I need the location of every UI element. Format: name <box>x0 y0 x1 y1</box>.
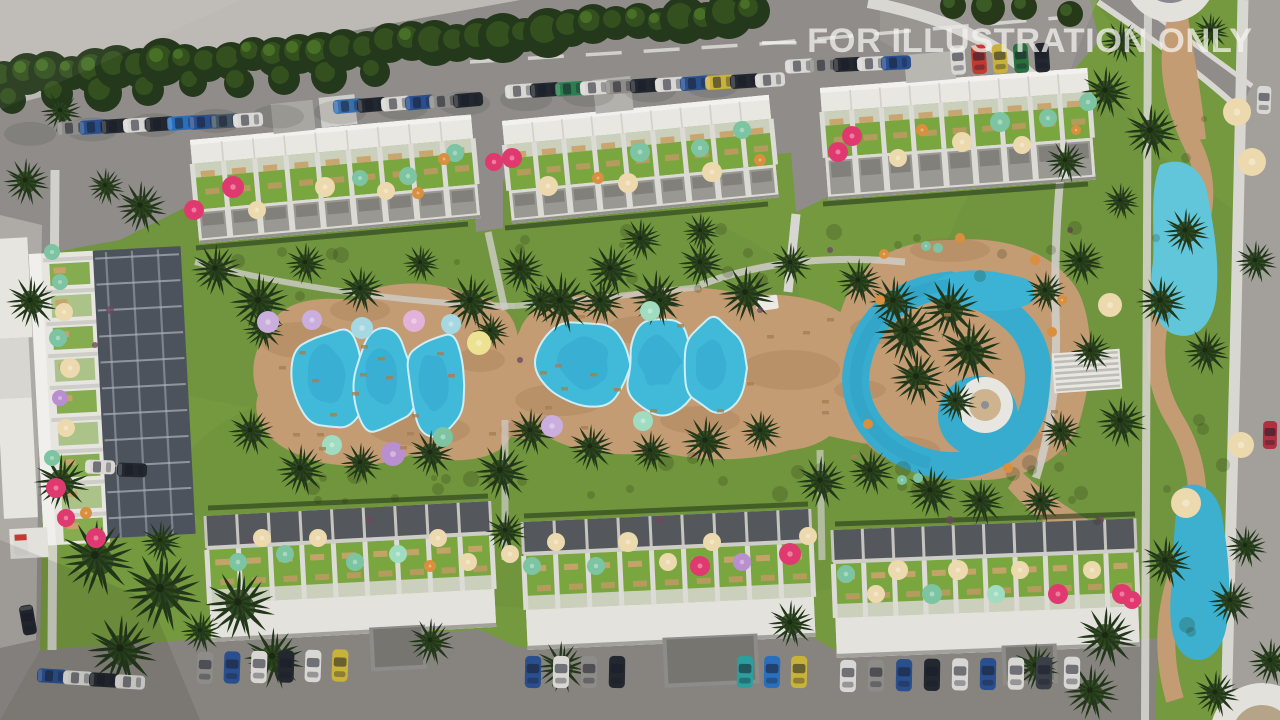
svg-text:— FOR ILLUSTRATION ONLY: — FOR ILLUSTRATION ONLY <box>762 22 1253 60</box>
